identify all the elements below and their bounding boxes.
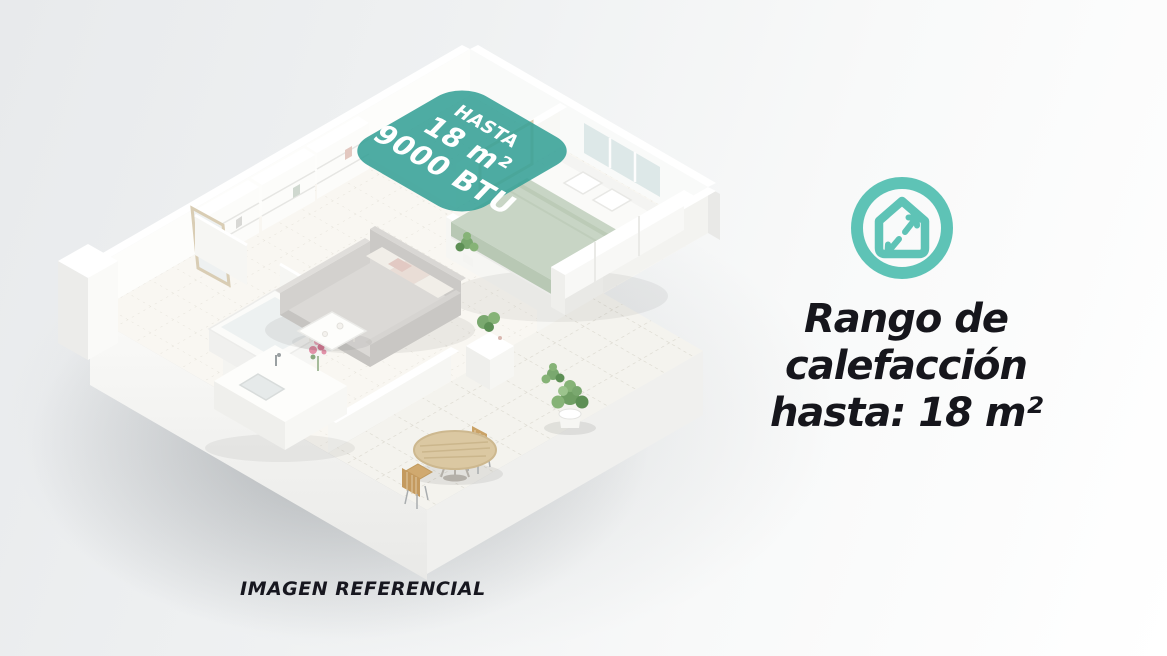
east-corner-pillar: [708, 187, 720, 240]
marketing-banner: HASTA 18 m² 9000 BTU Rango de calefacció…: [0, 0, 1167, 656]
reference-caption: IMAGEN REFERENCIAL: [240, 578, 486, 600]
heading-line: hasta: 18 m²: [716, 390, 1096, 437]
expand-arrows-icon: [888, 218, 918, 254]
house-expand-icon: [844, 170, 960, 286]
heading-line: Rango de: [716, 296, 1096, 343]
heading-line: calefacción: [716, 343, 1096, 390]
west-corner-pillar: [58, 244, 118, 360]
heading: Rango de calefacción hasta: 18 m²: [716, 296, 1096, 436]
